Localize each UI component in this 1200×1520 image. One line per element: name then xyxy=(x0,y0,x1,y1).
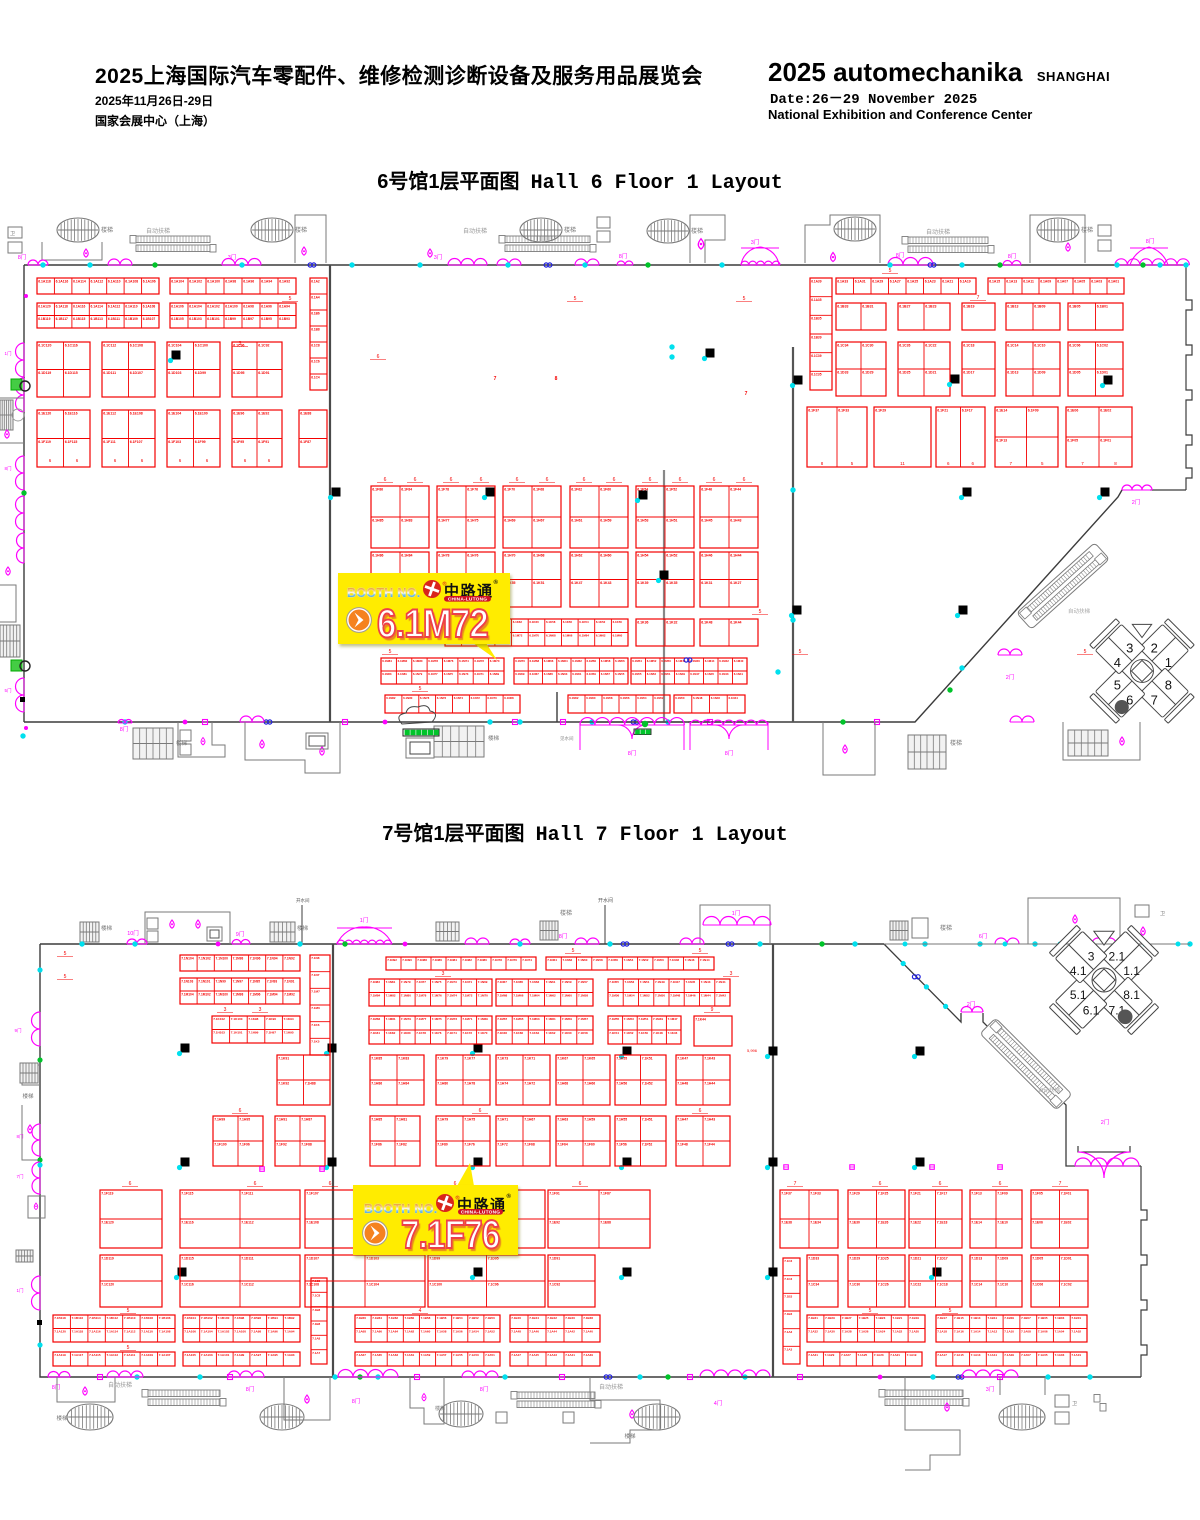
svg-text:6.1D33: 6.1D33 xyxy=(837,371,848,375)
svg-text:7.1A48: 7.1A48 xyxy=(511,1330,521,1334)
svg-text:6.1A19: 6.1A19 xyxy=(960,280,971,284)
svg-text:7.1M102: 7.1M102 xyxy=(198,992,211,996)
svg-text:5: 5 xyxy=(64,951,67,957)
svg-text:6.1K50: 6.1K50 xyxy=(613,620,623,624)
svg-text:7.1H85: 7.1H85 xyxy=(371,1118,382,1122)
svg-text:6.1N61: 6.1N61 xyxy=(572,672,582,676)
svg-text:8门: 8门 xyxy=(1146,237,1155,245)
svg-text:7.1A114: 7.1A114 xyxy=(107,1330,119,1334)
svg-text:6.1K47: 6.1K47 xyxy=(571,581,582,585)
svg-text:6.1D115: 6.1D115 xyxy=(65,371,78,375)
svg-text:6.1M64: 6.1M64 xyxy=(579,634,589,638)
svg-text:6.1M50: 6.1M50 xyxy=(661,659,671,663)
svg-text:7.1K50: 7.1K50 xyxy=(638,1031,648,1035)
svg-text:6.1D17: 6.1D17 xyxy=(963,371,974,375)
svg-text:7.1B54: 7.1B54 xyxy=(453,1316,463,1320)
svg-text:7.1B11: 7.1B11 xyxy=(988,1316,998,1320)
svg-text:6.1N75: 6.1N75 xyxy=(444,672,454,676)
svg-text:7.1A95: 7.1A95 xyxy=(268,1353,278,1357)
svg-text:7.1M82: 7.1M82 xyxy=(386,994,396,998)
svg-text:7.1N74: 7.1N74 xyxy=(522,958,532,962)
svg-text:7.1H48: 7.1H48 xyxy=(677,1082,688,1086)
svg-text:7.1M68: 7.1M68 xyxy=(497,994,507,998)
svg-text:6.1N79: 6.1N79 xyxy=(413,672,423,676)
svg-text:7.1A109: 7.1A109 xyxy=(141,1353,153,1357)
svg-text:6.1: 6.1 xyxy=(1083,1004,1100,1018)
svg-text:7.1N56: 7.1N56 xyxy=(608,958,618,962)
svg-text:7.1K96: 7.1K96 xyxy=(266,1017,276,1021)
svg-text:7.1K77: 7.1K77 xyxy=(464,1057,475,1061)
svg-text:7.1B17: 7.1B17 xyxy=(937,1316,947,1320)
svg-text:7.1H91: 7.1H91 xyxy=(276,1118,287,1122)
svg-text:7.1N101: 7.1N101 xyxy=(198,979,210,983)
svg-text:6.1A118: 6.1A118 xyxy=(38,280,51,284)
svg-text:6.1M54: 6.1M54 xyxy=(632,659,642,663)
svg-text:7.1K92: 7.1K92 xyxy=(278,1082,289,1086)
svg-text:6.1B8: 6.1B8 xyxy=(311,327,320,331)
svg-text:7.1K48: 7.1K48 xyxy=(653,1031,663,1035)
svg-text:7.1A67: 7.1A67 xyxy=(356,1353,366,1357)
svg-text:7: 7 xyxy=(977,295,980,301)
svg-text:楼梯: 楼梯 xyxy=(22,1092,34,1100)
svg-text:6.1N74: 6.1N74 xyxy=(454,696,464,700)
svg-text:6.1A33: 6.1A33 xyxy=(837,280,848,284)
svg-text:6.1H53: 6.1H53 xyxy=(637,519,648,523)
svg-text:7.1H101: 7.1H101 xyxy=(231,1031,243,1035)
svg-text:7.1M71: 7.1M71 xyxy=(462,1017,472,1021)
svg-text:7.1A66: 7.1A66 xyxy=(372,1330,382,1334)
svg-text:6.1H67: 6.1H67 xyxy=(533,519,544,523)
svg-text:7.1A110: 7.1A110 xyxy=(141,1330,153,1334)
svg-text:7.1B52: 7.1B52 xyxy=(469,1316,479,1320)
svg-text:6.1C35: 6.1C35 xyxy=(811,373,822,377)
svg-text:6.1A112: 6.1A112 xyxy=(108,304,120,308)
svg-text:7.1A03: 7.1A03 xyxy=(1055,1353,1065,1357)
svg-text:7.1N51: 7.1N51 xyxy=(640,980,650,984)
svg-text:6: 6 xyxy=(239,1108,242,1114)
svg-text:7.1A118: 7.1A118 xyxy=(72,1330,84,1334)
svg-text:7.1A119: 7.1A119 xyxy=(54,1353,66,1357)
svg-text:8门: 8门 xyxy=(18,253,27,261)
svg-text:8: 8 xyxy=(1165,678,1172,693)
svg-text:4: 4 xyxy=(419,1308,422,1314)
svg-text:7.1M56: 7.1M56 xyxy=(609,994,619,998)
svg-text:6.1F103: 6.1F103 xyxy=(168,440,181,444)
svg-text:7.1N76: 7.1N76 xyxy=(507,958,517,962)
svg-text:7.1N102: 7.1N102 xyxy=(198,956,211,960)
svg-text:6.1F76: 6.1F76 xyxy=(467,488,478,492)
svg-text:6.1F87: 6.1F87 xyxy=(300,440,311,444)
svg-text:7.1N86: 7.1N86 xyxy=(432,958,442,962)
svg-text:7.1N94: 7.1N94 xyxy=(267,956,278,960)
svg-text:8: 8 xyxy=(555,376,558,382)
svg-text:6.1A100: 6.1A100 xyxy=(225,304,238,308)
svg-text:7.1A3: 7.1A3 xyxy=(784,1347,792,1351)
svg-text:7.1E116: 7.1E116 xyxy=(181,1221,194,1225)
svg-text:6.1A94: 6.1A94 xyxy=(261,280,272,284)
svg-text:7.1A12: 7.1A12 xyxy=(988,1330,998,1334)
svg-text:10门: 10门 xyxy=(127,929,139,937)
svg-text:7.1K98: 7.1K98 xyxy=(248,1017,258,1021)
svg-text:8门: 8门 xyxy=(246,1385,255,1393)
svg-text:7.1D17: 7.1D17 xyxy=(937,1257,948,1261)
svg-text:6: 6 xyxy=(743,477,746,483)
svg-text:6.1K43: 6.1K43 xyxy=(600,581,611,585)
svg-text:6.1E112: 6.1E112 xyxy=(103,412,116,416)
svg-text:5: 5 xyxy=(574,296,577,302)
svg-text:7.1N71: 7.1N71 xyxy=(462,980,472,984)
svg-text:7.1B8: 7.1B8 xyxy=(312,1322,320,1326)
svg-text:7.1N99: 7.1N99 xyxy=(216,979,227,983)
svg-text:7.1N57: 7.1N57 xyxy=(578,980,588,984)
svg-text:6: 6 xyxy=(206,458,209,463)
svg-text:5: 5 xyxy=(1114,678,1121,693)
svg-text:6.1H84: 6.1H84 xyxy=(401,554,412,558)
svg-text:7.1F72: 7.1F72 xyxy=(497,1143,508,1147)
svg-text:6.1H61: 6.1H61 xyxy=(571,519,582,523)
svg-text:5: 5 xyxy=(572,948,575,954)
svg-text:7.1K62: 7.1K62 xyxy=(546,1031,556,1035)
svg-text:6.1A114: 6.1A114 xyxy=(73,280,86,284)
svg-text:6: 6 xyxy=(254,1181,257,1187)
svg-text:7.1C34: 7.1C34 xyxy=(808,1283,819,1287)
svg-text:7.1H75: 7.1H75 xyxy=(464,1118,475,1122)
svg-text:7.1N52: 7.1N52 xyxy=(639,958,649,962)
svg-text:6.1K51: 6.1K51 xyxy=(533,581,544,585)
svg-text:7.1N79: 7.1N79 xyxy=(401,980,411,984)
svg-text:6.1H54: 6.1H54 xyxy=(637,554,648,558)
svg-text:6.1B23: 6.1B23 xyxy=(925,305,936,309)
svg-text:7.1E30: 7.1E30 xyxy=(849,1221,860,1225)
svg-text:7.1C116: 7.1C116 xyxy=(181,1283,194,1287)
svg-text:6.1M64: 6.1M64 xyxy=(558,659,568,663)
svg-text:7.1M73: 7.1M73 xyxy=(447,1017,457,1021)
svg-text:6.1N59: 6.1N59 xyxy=(587,672,597,676)
svg-text:楼梯: 楼梯 xyxy=(950,739,962,747)
svg-text:7.1A09: 7.1A09 xyxy=(1004,1353,1014,1357)
svg-text:7.1N63: 7.1N63 xyxy=(530,980,540,984)
svg-text:5门: 5门 xyxy=(4,687,12,694)
svg-text:7.1A106: 7.1A106 xyxy=(184,1330,196,1334)
svg-text:6.1D21: 6.1D21 xyxy=(925,371,936,375)
svg-text:7.1D05: 7.1D05 xyxy=(1032,1257,1043,1261)
svg-text:6.1C10: 6.1C10 xyxy=(1034,344,1045,348)
svg-text:7: 7 xyxy=(1059,1181,1062,1187)
svg-text:7.1K64: 7.1K64 xyxy=(530,1031,540,1035)
svg-text:7.1F52: 7.1F52 xyxy=(642,1143,653,1147)
svg-text:6.1K62: 6.1K62 xyxy=(513,620,523,624)
svg-text:5.1: 5.1 xyxy=(1070,988,1087,1002)
svg-text:见水间: 见水间 xyxy=(560,735,574,742)
svg-text:开水间: 开水间 xyxy=(598,897,613,904)
svg-text:2门: 2门 xyxy=(967,1000,976,1008)
svg-text:7.1H71: 7.1H71 xyxy=(497,1118,508,1122)
svg-text:5: 5 xyxy=(389,649,392,655)
svg-text:6.1F44: 6.1F44 xyxy=(730,488,741,492)
svg-text:7.1A101: 7.1A101 xyxy=(218,1353,230,1357)
svg-text:2门: 2门 xyxy=(1132,498,1141,506)
svg-text:7.1M81: 7.1M81 xyxy=(386,1017,396,1021)
svg-text:7.1B31: 7.1B31 xyxy=(808,1316,818,1320)
svg-text:7.1A31: 7.1A31 xyxy=(808,1353,818,1357)
svg-text:6: 6 xyxy=(450,477,453,483)
svg-text:7.1E18: 7.1E18 xyxy=(937,1221,948,1225)
svg-text:6.1N60: 6.1N60 xyxy=(586,696,596,700)
svg-text:7.1H99: 7.1H99 xyxy=(214,1118,225,1122)
svg-text:8门: 8门 xyxy=(896,251,905,259)
svg-text:6: 6 xyxy=(244,458,247,463)
svg-text:自动扶梯: 自动扶梯 xyxy=(1038,1086,1061,1094)
svg-text:6.1F33: 6.1F33 xyxy=(838,409,849,413)
svg-text:7.1M46: 7.1M46 xyxy=(686,994,696,998)
svg-text:7.1A103: 7.1A103 xyxy=(201,1353,213,1357)
svg-text:6: 6 xyxy=(414,477,417,483)
svg-text:7.1K6: 7.1K6 xyxy=(311,1023,320,1027)
svg-text:6.1A96: 6.1A96 xyxy=(261,304,272,308)
svg-text:7.1H81: 7.1H81 xyxy=(396,1118,407,1122)
svg-text:6.1H85: 6.1H85 xyxy=(372,519,383,523)
svg-text:6.1H46: 6.1H46 xyxy=(701,554,712,558)
svg-text:6.1M76: 6.1M76 xyxy=(444,659,454,663)
svg-text:6.1N41: 6.1N41 xyxy=(734,672,744,676)
svg-text:6.1N57: 6.1N57 xyxy=(601,672,611,676)
svg-text:7.1N64: 7.1N64 xyxy=(547,958,557,962)
svg-text:6.1B05: 6.1B05 xyxy=(1069,305,1080,309)
svg-text:7.1A06: 7.1A06 xyxy=(1038,1330,1048,1334)
svg-text:7.1H103: 7.1H103 xyxy=(213,1031,225,1035)
svg-text:7.1C92: 7.1C92 xyxy=(549,1283,560,1287)
svg-text:7.1E14: 7.1E14 xyxy=(971,1221,982,1225)
svg-text:7.1N62: 7.1N62 xyxy=(563,958,573,962)
svg-text:7.1K65: 7.1K65 xyxy=(584,1057,595,1061)
svg-text:7.1M79: 7.1M79 xyxy=(401,1017,411,1021)
svg-text:7.1H87: 7.1H87 xyxy=(301,1118,312,1122)
svg-text:6.1F91: 6.1F91 xyxy=(258,440,269,444)
svg-text:7.1M66: 7.1M66 xyxy=(513,994,523,998)
svg-text:6.1A96: 6.1A96 xyxy=(243,280,254,284)
svg-text:7.1D25: 7.1D25 xyxy=(878,1257,889,1261)
svg-text:7.1A14: 7.1A14 xyxy=(971,1330,981,1334)
svg-text:7.1B3: 7.1B3 xyxy=(784,1312,792,1316)
svg-text:7.1H55: 7.1H55 xyxy=(616,1118,627,1122)
svg-text:6.1A15: 6.1A15 xyxy=(989,280,1000,284)
svg-text:7.1N92: 7.1N92 xyxy=(284,956,295,960)
svg-text:7.1N67: 7.1N67 xyxy=(497,980,507,984)
svg-text:6.1K39: 6.1K39 xyxy=(637,581,648,585)
svg-text:7.1D95: 7.1D95 xyxy=(488,1257,499,1261)
svg-text:6.1D01: 6.1D01 xyxy=(1097,371,1108,375)
svg-text:7.1K80: 7.1K80 xyxy=(401,1031,411,1035)
svg-text:7.1N73: 7.1N73 xyxy=(447,980,457,984)
svg-text:6.1M60: 6.1M60 xyxy=(587,659,597,663)
svg-text:6.1K52: 6.1K52 xyxy=(596,620,606,624)
svg-text:5,996: 5,996 xyxy=(747,1048,758,1053)
svg-text:7.1C02: 7.1C02 xyxy=(1061,1283,1072,1287)
svg-text:6.1K56: 6.1K56 xyxy=(563,620,573,624)
svg-text:7.1N45: 7.1N45 xyxy=(686,980,696,984)
svg-text:6.1D09: 6.1D09 xyxy=(1034,371,1045,375)
svg-text:7.1B19: 7.1B19 xyxy=(909,1316,919,1320)
svg-text:7.1H84: 7.1H84 xyxy=(398,1082,409,1086)
svg-text:7.1M64: 7.1M64 xyxy=(530,994,540,998)
svg-text:2门: 2门 xyxy=(1101,1118,1110,1126)
svg-text:7.1K46: 7.1K46 xyxy=(668,1031,678,1035)
svg-text:6.1F21: 6.1F21 xyxy=(937,409,948,413)
svg-text:7.1A93: 7.1A93 xyxy=(285,1353,295,1357)
svg-text:7.1N92: 7.1N92 xyxy=(387,958,397,962)
svg-text:6.1C39: 6.1C39 xyxy=(811,354,822,358)
svg-text:7.1C10: 7.1C10 xyxy=(997,1283,1008,1287)
svg-text:7.1A120: 7.1A120 xyxy=(54,1330,66,1334)
svg-text:7: 7 xyxy=(745,391,748,397)
svg-text:7.1A30: 7.1A30 xyxy=(825,1330,835,1334)
svg-text:6: 6 xyxy=(268,458,271,463)
svg-text:8门: 8门 xyxy=(619,252,628,260)
svg-text:自动扶梯: 自动扶梯 xyxy=(926,228,950,236)
svg-text:6.1A92: 6.1A92 xyxy=(279,280,290,284)
svg-text:6: 6 xyxy=(479,1108,482,1114)
svg-text:6.1N48: 6.1N48 xyxy=(693,696,703,700)
svg-text:7.1H59: 7.1H59 xyxy=(584,1118,595,1122)
svg-text:6.1N81: 6.1N81 xyxy=(398,672,408,676)
svg-text:8: 8 xyxy=(1114,461,1117,466)
svg-text:7.1H67: 7.1H67 xyxy=(524,1118,535,1122)
svg-text:6.1M68: 6.1M68 xyxy=(546,634,556,638)
svg-text:7门: 7门 xyxy=(16,1173,24,1180)
svg-text:6: 6 xyxy=(141,458,144,463)
svg-text:7.1N81: 7.1N81 xyxy=(386,980,396,984)
svg-text:7.1K79: 7.1K79 xyxy=(437,1057,448,1061)
svg-text:6.1B115: 6.1B115 xyxy=(73,317,85,321)
svg-text:8门: 8门 xyxy=(120,725,129,733)
svg-text:7.1F82: 7.1F82 xyxy=(396,1143,407,1147)
svg-text:6.1N43: 6.1N43 xyxy=(719,672,729,676)
svg-text:6.1A94: 6.1A94 xyxy=(279,304,290,308)
svg-text:6.1N67: 6.1N67 xyxy=(530,672,540,676)
svg-text:楼梯: 楼梯 xyxy=(435,1405,445,1412)
svg-text:7.1C104: 7.1C104 xyxy=(366,1283,379,1287)
svg-text:7.1M51: 7.1M51 xyxy=(638,1017,648,1021)
svg-text:6.1B119: 6.1B119 xyxy=(38,317,50,321)
svg-text:6.1K60: 6.1K60 xyxy=(529,620,539,624)
svg-text:7.1N100: 7.1N100 xyxy=(216,956,229,960)
svg-text:7.1A17: 7.1A17 xyxy=(937,1353,947,1357)
svg-text:6.1E92: 6.1E92 xyxy=(258,412,269,416)
svg-text:6.1N53: 6.1N53 xyxy=(647,672,657,676)
svg-text:6.1D91: 6.1D91 xyxy=(258,371,269,375)
svg-text:9门: 9门 xyxy=(236,930,245,938)
svg-text:6.1N46: 6.1N46 xyxy=(711,696,721,700)
svg-text:自动扶梯: 自动扶梯 xyxy=(108,1381,132,1389)
svg-text:6.1N63: 6.1N63 xyxy=(558,672,568,676)
svg-text:6: 6 xyxy=(947,461,950,466)
svg-text:6.1B95: 6.1B95 xyxy=(261,317,272,321)
svg-text:6.1E120: 6.1E120 xyxy=(38,412,51,416)
svg-text:6.1C108: 6.1C108 xyxy=(130,344,143,348)
svg-text:6.1A23: 6.1A23 xyxy=(925,280,936,284)
svg-text:8门: 8门 xyxy=(52,1383,61,1391)
svg-text:6.1B35: 6.1B35 xyxy=(811,317,822,321)
svg-text:7.1N77: 7.1N77 xyxy=(416,980,426,984)
svg-text:7.1B92: 7.1B92 xyxy=(285,1316,295,1320)
svg-text:6.1K44: 6.1K44 xyxy=(730,621,741,625)
svg-text:7.1E34: 7.1E34 xyxy=(810,1221,821,1225)
svg-text:7.1F68: 7.1F68 xyxy=(524,1143,535,1147)
svg-text:6.1M80: 6.1M80 xyxy=(413,659,423,663)
svg-text:7.1M94: 7.1M94 xyxy=(267,992,278,996)
svg-text:6.1D13: 6.1D13 xyxy=(1007,371,1018,375)
svg-text:7.1N46: 7.1N46 xyxy=(685,958,695,962)
svg-text:7.1K71: 7.1K71 xyxy=(524,1057,535,1061)
svg-text:7.1C18: 7.1C18 xyxy=(937,1283,948,1287)
svg-text:7.1K74: 7.1K74 xyxy=(447,1031,457,1035)
svg-text:6.1M66: 6.1M66 xyxy=(544,659,554,663)
svg-text:5: 5 xyxy=(419,686,422,692)
svg-text:7.1A05: 7.1A05 xyxy=(1038,1353,1048,1357)
svg-text:6.1M62: 6.1M62 xyxy=(596,634,606,638)
svg-text:7.1N90: 7.1N90 xyxy=(402,958,412,962)
svg-text:6.1N77: 6.1N77 xyxy=(428,672,438,676)
svg-text:6.1E104: 6.1E104 xyxy=(168,412,181,416)
svg-text:6.1N83: 6.1N83 xyxy=(382,672,392,676)
svg-text:7.1A111: 7.1A111 xyxy=(124,1353,136,1357)
svg-text:7.1F09: 7.1F09 xyxy=(997,1192,1008,1196)
svg-text:7.1K70: 7.1K70 xyxy=(478,1031,488,1035)
svg-text:7.1A105: 7.1A105 xyxy=(184,1353,196,1357)
svg-text:6: 6 xyxy=(699,1108,702,1114)
svg-text:6.1C14: 6.1C14 xyxy=(1007,344,1018,348)
svg-text:7.1A32: 7.1A32 xyxy=(808,1330,818,1334)
svg-text:7.1A53: 7.1A53 xyxy=(469,1353,479,1357)
svg-text:7.1H44: 7.1H44 xyxy=(704,1082,715,1086)
svg-text:6.1D99: 6.1D99 xyxy=(195,371,206,375)
svg-text:7.1C96: 7.1C96 xyxy=(488,1283,499,1287)
svg-text:7.1N8: 7.1N8 xyxy=(311,956,320,960)
svg-text:7.1F60: 7.1F60 xyxy=(584,1143,595,1147)
svg-text:6: 6 xyxy=(516,477,519,483)
svg-text:6.1F68: 6.1F68 xyxy=(533,488,544,492)
svg-text:楼梯: 楼梯 xyxy=(297,924,309,932)
svg-text:7.1B100: 7.1B100 xyxy=(218,1316,230,1320)
svg-text:7.1C112: 7.1C112 xyxy=(241,1283,254,1287)
svg-text:6.1B97: 6.1B97 xyxy=(243,317,254,321)
svg-text:5: 5 xyxy=(64,974,67,980)
svg-text:7.1M54: 7.1M54 xyxy=(625,994,635,998)
svg-text:6.1F99: 6.1F99 xyxy=(195,440,206,444)
svg-text:CHINA-LUTONG: CHINA-LUTONG xyxy=(448,596,487,602)
svg-text:7.1K84: 7.1K84 xyxy=(370,1031,380,1035)
svg-text:7.1B96: 7.1B96 xyxy=(251,1316,261,1320)
svg-text:7.1A20: 7.1A20 xyxy=(909,1330,919,1334)
svg-text:7.1N53: 7.1N53 xyxy=(625,980,635,984)
svg-text:6.1K27: 6.1K27 xyxy=(730,581,741,585)
svg-text:6.1K48: 6.1K48 xyxy=(701,621,712,625)
svg-text:7.1A40: 7.1A40 xyxy=(583,1330,593,1334)
svg-text:7.1H43: 7.1H43 xyxy=(704,1118,715,1122)
svg-text:6.1F29: 6.1F29 xyxy=(875,409,886,413)
svg-text:6.1B99: 6.1B99 xyxy=(225,317,236,321)
svg-text:7.1F107: 7.1F107 xyxy=(306,1192,319,1196)
svg-text:7: 7 xyxy=(1010,461,1013,466)
svg-text:6.1H78: 6.1H78 xyxy=(438,554,449,558)
svg-text:开水间: 开水间 xyxy=(296,897,310,904)
svg-text:6.1E02: 6.1E02 xyxy=(1100,409,1111,413)
svg-text:卫: 卫 xyxy=(10,231,15,237)
svg-text:7.1N47: 7.1N47 xyxy=(670,980,680,984)
svg-text:7.1B3: 7.1B3 xyxy=(784,1294,792,1298)
svg-text:6.1N44: 6.1N44 xyxy=(729,696,739,700)
svg-text:1: 1 xyxy=(1165,655,1172,670)
